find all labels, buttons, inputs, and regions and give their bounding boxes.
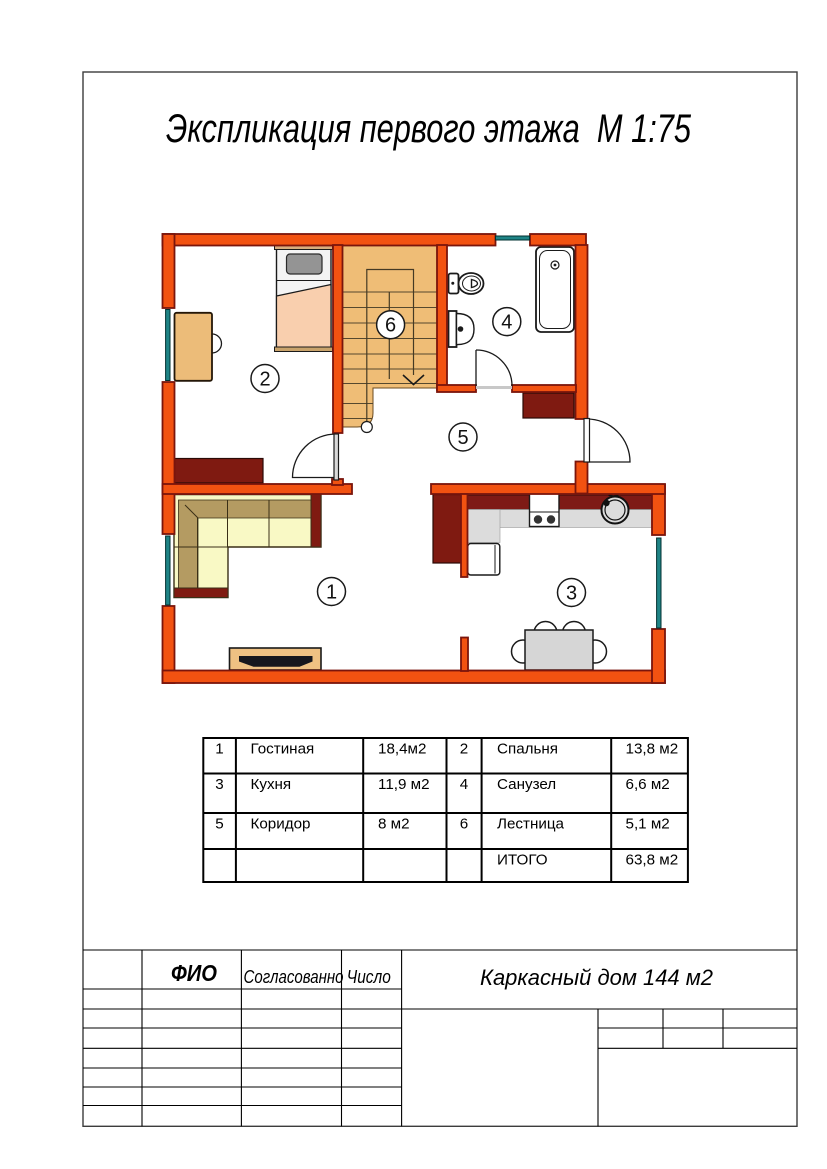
svg-text:63,8 м2: 63,8 м2 (626, 852, 679, 869)
svg-text:5,1 м2: 5,1 м2 (626, 816, 670, 833)
svg-text:5: 5 (457, 427, 468, 449)
svg-text:13,8 м2: 13,8 м2 (626, 741, 679, 758)
svg-text:3: 3 (566, 583, 577, 605)
svg-text:11,9 м2: 11,9 м2 (378, 776, 430, 793)
svg-text:ФИО: ФИО (171, 960, 217, 986)
svg-text:Гостиная: Гостиная (251, 741, 315, 758)
svg-text:Кухня: Кухня (251, 776, 292, 793)
svg-text:6: 6 (385, 315, 396, 337)
svg-text:5: 5 (215, 816, 223, 833)
svg-text:Спальня: Спальня (497, 741, 558, 758)
svg-text:18,4м2: 18,4м2 (378, 741, 426, 758)
svg-text:Санузел: Санузел (497, 776, 556, 793)
svg-text:Экспликация первого этажа М 1: Экспликация первого этажа М 1:75 (166, 107, 692, 151)
svg-text:2: 2 (460, 741, 468, 758)
svg-text:Согласованно: Согласованно (244, 967, 344, 987)
svg-text:Число: Число (347, 967, 391, 987)
svg-text:Каркасный дом 144 м2: Каркасный дом 144 м2 (480, 965, 713, 990)
svg-text:4: 4 (501, 312, 512, 334)
svg-text:Коридор: Коридор (251, 816, 311, 833)
svg-text:2: 2 (259, 369, 270, 391)
svg-text:1: 1 (215, 741, 223, 758)
svg-text:8 м2: 8 м2 (378, 816, 410, 833)
svg-text:6,6 м2: 6,6 м2 (626, 776, 670, 793)
svg-text:1: 1 (326, 582, 337, 604)
svg-text:4: 4 (460, 776, 468, 793)
svg-text:ИТОГО: ИТОГО (497, 852, 548, 869)
svg-text:6: 6 (460, 816, 468, 833)
svg-text:Лестница: Лестница (497, 816, 565, 833)
svg-text:3: 3 (215, 776, 223, 793)
